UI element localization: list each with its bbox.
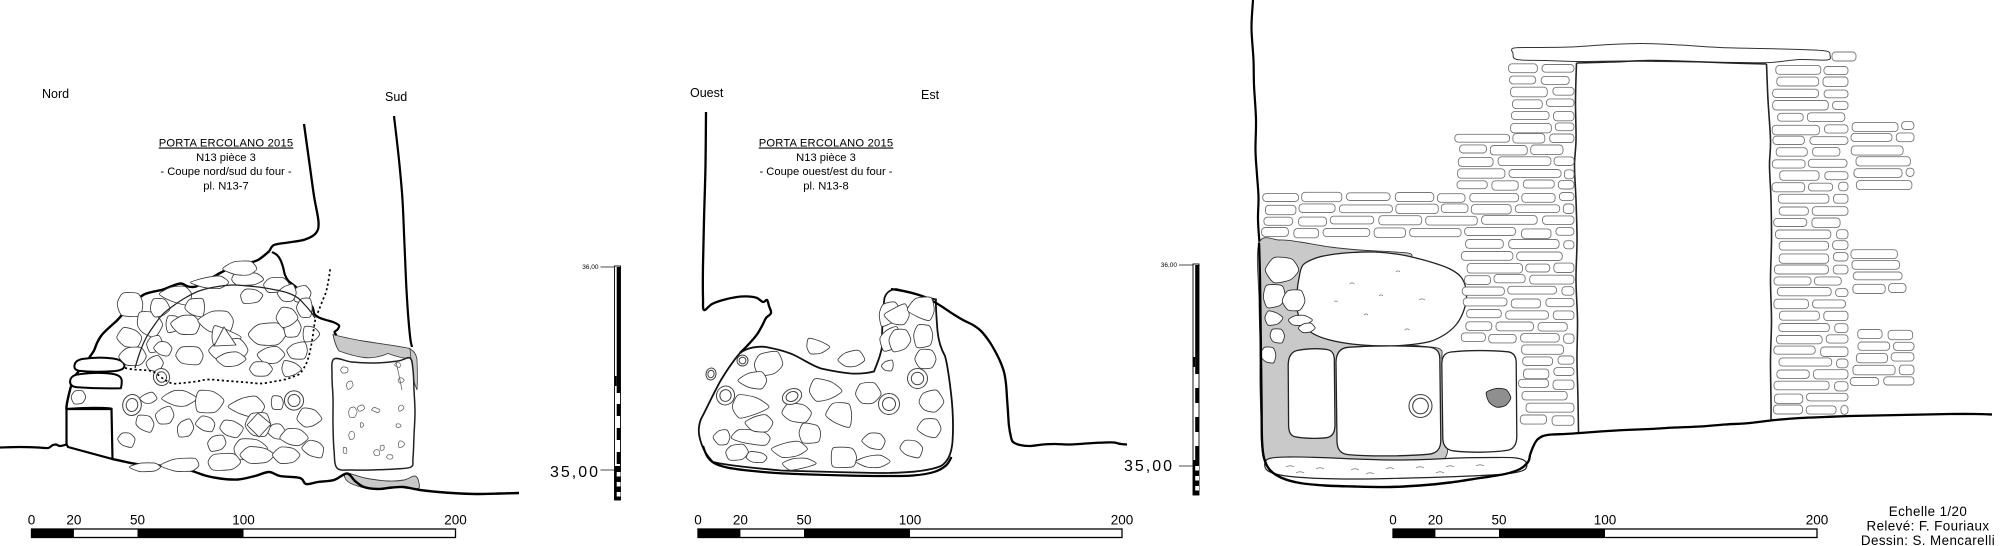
- svg-text:100: 100: [899, 513, 922, 528]
- svg-text:50: 50: [1491, 513, 1506, 528]
- svg-text:- Coupe ouest/est du four -: - Coupe ouest/est du four -: [759, 166, 892, 178]
- svg-text:pl. N13-7: pl. N13-7: [203, 181, 248, 193]
- svg-text:- Coupe nord/sud du four -: - Coupe nord/sud du four -: [160, 166, 291, 178]
- svg-text:Sud: Sud: [385, 90, 407, 104]
- svg-text:Relevé: F. Fouriaux: Relevé: F. Fouriaux: [1867, 519, 1990, 534]
- svg-text:100: 100: [1594, 513, 1617, 528]
- svg-text:N13 pièce 3: N13 pièce 3: [196, 152, 256, 164]
- svg-text:pl. N13-8: pl. N13-8: [803, 181, 848, 193]
- svg-text:200: 200: [1111, 513, 1134, 528]
- svg-text:35,00: 35,00: [550, 464, 600, 481]
- svg-text:PORTA ERCOLANO 2015: PORTA ERCOLANO 2015: [159, 138, 294, 150]
- svg-text:50: 50: [130, 513, 145, 528]
- svg-text:20: 20: [1428, 513, 1443, 528]
- svg-text:0: 0: [694, 513, 702, 528]
- svg-text:Est: Est: [921, 88, 940, 102]
- svg-text:N13 pièce 3: N13 pièce 3: [796, 152, 856, 164]
- svg-text:Ouest: Ouest: [690, 86, 724, 100]
- svg-text:200: 200: [444, 513, 467, 528]
- svg-text:0: 0: [1389, 513, 1397, 528]
- svg-text:100: 100: [232, 513, 255, 528]
- svg-text:PORTA ERCOLANO 2015: PORTA ERCOLANO 2015: [759, 138, 894, 150]
- svg-text:35,00: 35,00: [1124, 458, 1174, 475]
- svg-text:36,00: 36,00: [1161, 262, 1178, 269]
- svg-text:Nord: Nord: [42, 87, 69, 101]
- svg-text:Dessin: S. Mencarelli: Dessin: S. Mencarelli: [1861, 533, 1995, 546]
- svg-text:200: 200: [1806, 513, 1829, 528]
- svg-text:Echelle 1/20: Echelle 1/20: [1889, 504, 1968, 519]
- svg-text:36,00: 36,00: [582, 264, 599, 271]
- svg-text:20: 20: [733, 513, 748, 528]
- svg-text:50: 50: [796, 513, 811, 528]
- svg-text:0: 0: [28, 513, 36, 528]
- svg-text:20: 20: [66, 513, 81, 528]
